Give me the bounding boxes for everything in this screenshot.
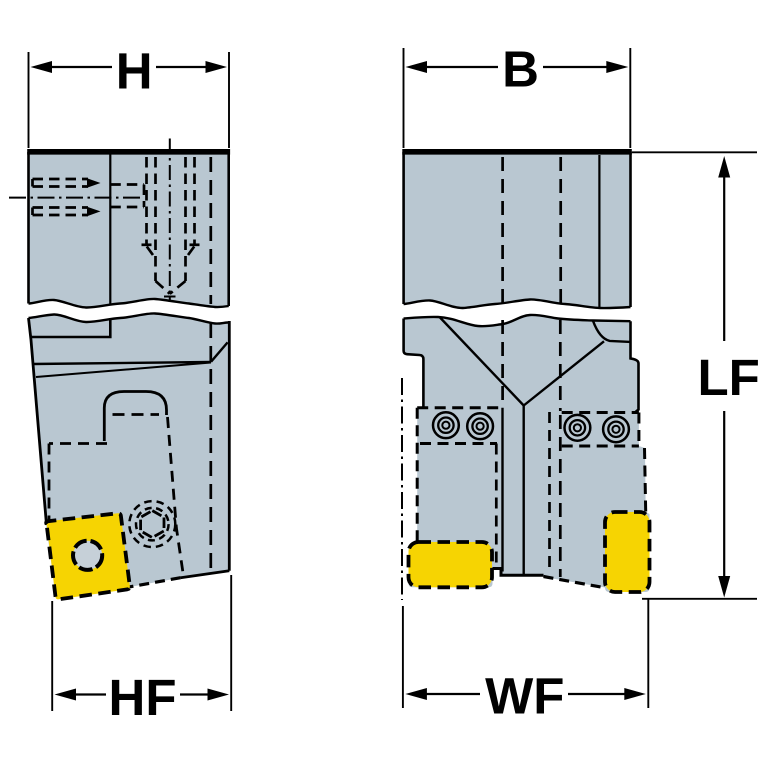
svg-text:HF: HF: [109, 669, 177, 726]
svg-text:H: H: [116, 43, 153, 100]
svg-text:B: B: [502, 41, 539, 98]
svg-text:WF: WF: [485, 668, 564, 725]
svg-text:LF: LF: [698, 349, 760, 406]
